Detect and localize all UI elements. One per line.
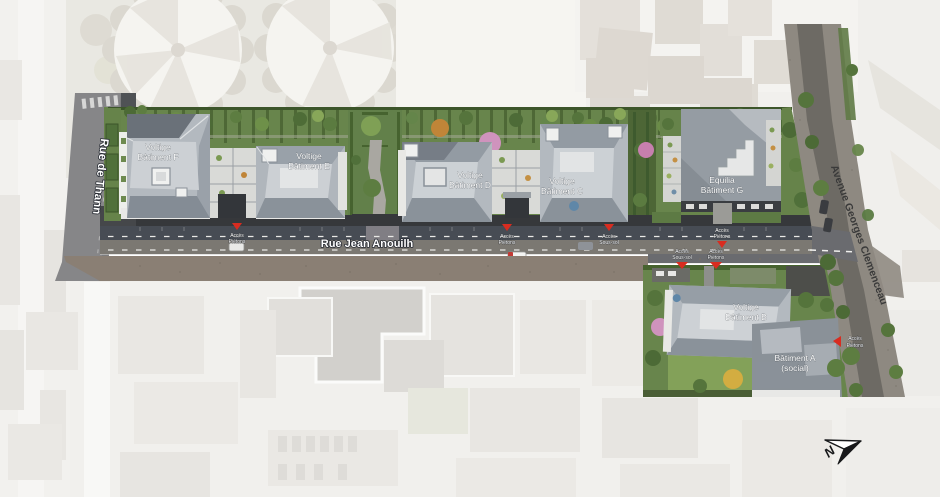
svg-text:Bâtiment B: Bâtiment B (725, 312, 767, 322)
svg-text:Piétons: Piétons (847, 343, 864, 349)
svg-text:Bâtiment E: Bâtiment E (288, 161, 330, 171)
svg-text:Rue Jean Anouilh: Rue Jean Anouilh (321, 238, 414, 250)
svg-text:Piétons: Piétons (499, 240, 516, 246)
svg-text:Bâtiment D: Bâtiment D (449, 180, 491, 190)
svg-text:Piétons: Piétons (229, 239, 246, 245)
svg-text:Bâtiment F: Bâtiment F (137, 152, 178, 162)
svg-text:Piétons: Piétons (714, 234, 731, 240)
svg-text:Bâtiment A: Bâtiment A (774, 353, 815, 363)
svg-text:Piétons: Piétons (708, 255, 725, 261)
svg-text:Sous-sol: Sous-sol (599, 240, 618, 246)
svg-text:Voltige: Voltige (145, 142, 171, 152)
svg-text:Bâtiment C: Bâtiment C (541, 186, 583, 196)
svg-text:Voltige: Voltige (296, 151, 322, 161)
svg-text:Sous-sol: Sous-sol (672, 255, 691, 261)
svg-text:(social): (social) (781, 363, 809, 373)
svg-text:Equilia: Equilia (709, 175, 735, 185)
svg-text:Bâtiment G: Bâtiment G (701, 185, 744, 195)
svg-text:Voltige: Voltige (733, 302, 759, 312)
svg-text:Voltige: Voltige (457, 170, 483, 180)
svg-text:Accès: Accès (848, 336, 862, 342)
svg-text:Voltige: Voltige (549, 176, 575, 186)
